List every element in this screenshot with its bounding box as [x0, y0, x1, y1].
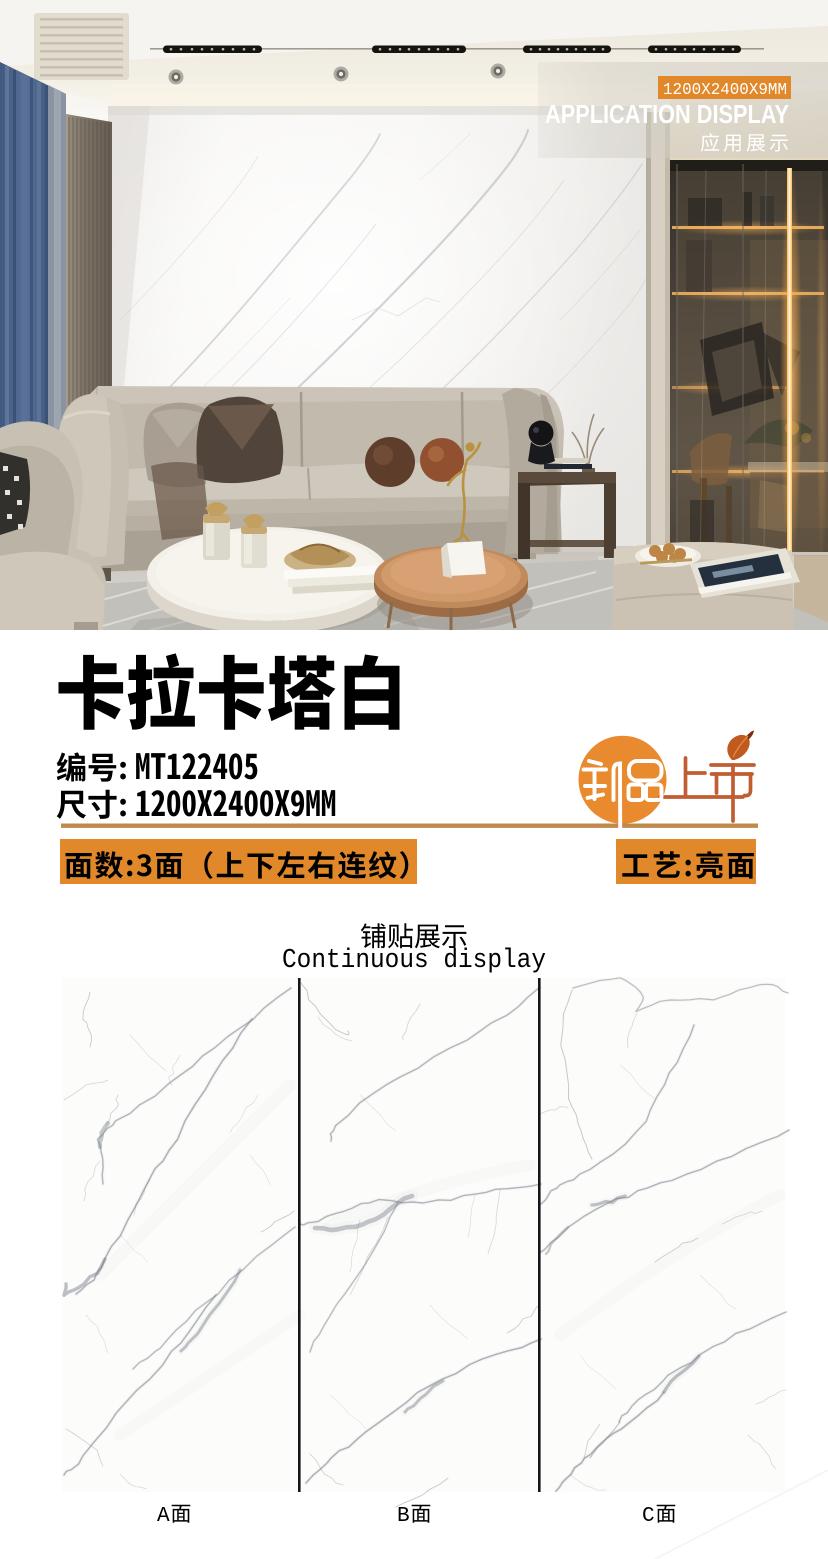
svg-text:Continuous display: Continuous display: [282, 946, 546, 975]
svg-text:A: A: [157, 1505, 170, 1528]
svg-text:APPLICATION DISPLAY: APPLICATION DISPLAY: [545, 99, 789, 129]
svg-text:1200X2400X9MM: 1200X2400X9MM: [663, 81, 787, 100]
svg-text:C: C: [642, 1505, 655, 1528]
svg-text:B: B: [397, 1505, 410, 1528]
